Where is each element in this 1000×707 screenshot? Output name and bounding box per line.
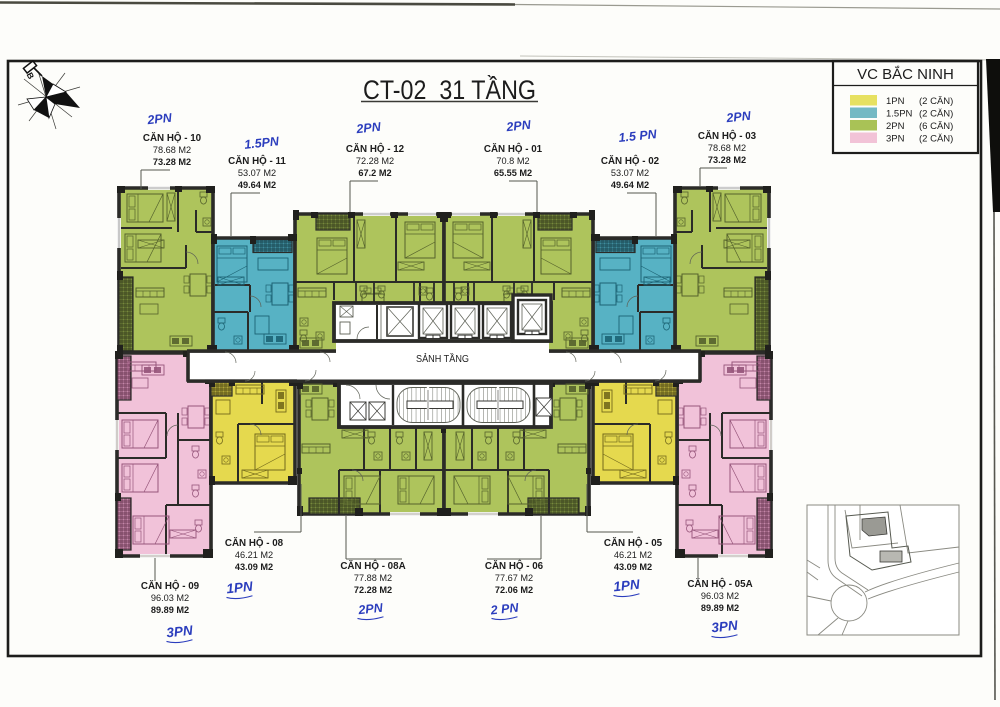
svg-text:CĂN HỘ - 05A: CĂN HỘ - 05A — [687, 578, 752, 590]
svg-text:96.03 M2: 96.03 M2 — [151, 593, 189, 603]
svg-text:77.67 M2: 77.67 M2 — [495, 573, 533, 583]
svg-text:70.8 M2: 70.8 M2 — [496, 156, 529, 166]
svg-text:2PN: 2PN — [146, 111, 174, 128]
svg-text:(2 CĂN): (2 CĂN) — [919, 134, 953, 145]
svg-text:2PN: 2PN — [357, 601, 385, 618]
svg-text:CĂN HỘ - 03: CĂN HỘ - 03 — [698, 130, 757, 142]
svg-text:43.09 M2: 43.09 M2 — [235, 562, 273, 572]
svg-text:78.68 M2: 78.68 M2 — [153, 145, 191, 155]
svg-text:3PN: 3PN — [711, 618, 739, 636]
svg-text:72.28 M2: 72.28 M2 — [356, 156, 394, 166]
svg-text:89.89 M2: 89.89 M2 — [151, 605, 189, 615]
svg-text:77.88 M2: 77.88 M2 — [354, 573, 392, 583]
svg-text:SẢNH TẦNG: SẢNH TẦNG — [416, 352, 469, 365]
svg-text:67.2 M2: 67.2 M2 — [358, 168, 391, 178]
svg-text:(6 CĂN): (6 CĂN) — [919, 121, 953, 132]
svg-text:1.5PN: 1.5PN — [244, 134, 281, 152]
svg-text:2PN: 2PN — [725, 109, 753, 126]
svg-text:49.64 M2: 49.64 M2 — [238, 180, 276, 190]
svg-text:72.28 M2: 72.28 M2 — [354, 585, 392, 595]
svg-text:72.06 M2: 72.06 M2 — [495, 585, 533, 595]
svg-text:VC BẮC NINH: VC BẮC NINH — [857, 65, 954, 83]
svg-text:73.28 M2: 73.28 M2 — [153, 157, 191, 167]
svg-text:2PN: 2PN — [355, 120, 383, 137]
svg-text:73.28 M2: 73.28 M2 — [708, 155, 746, 165]
svg-text:43.09 M2: 43.09 M2 — [614, 562, 652, 572]
svg-text:2 PN: 2 PN — [489, 601, 520, 618]
svg-text:2PN: 2PN — [886, 121, 905, 132]
svg-text:53.07 M2: 53.07 M2 — [238, 168, 276, 178]
svg-text:1PN: 1PN — [226, 579, 254, 597]
svg-text:53.07 M2: 53.07 M2 — [611, 168, 649, 178]
svg-text:CĂN HỘ - 01: CĂN HỘ - 01 — [484, 143, 543, 155]
svg-text:CT-02 31 TẦNG: CT-02 31 TẦNG — [363, 74, 536, 105]
svg-text:46.21 M2: 46.21 M2 — [235, 550, 273, 560]
svg-text:1PN: 1PN — [613, 577, 641, 595]
svg-text:CĂN HỘ - 06: CĂN HỘ - 06 — [485, 560, 544, 572]
svg-text:89.89 M2: 89.89 M2 — [701, 603, 739, 613]
svg-text:2PN: 2PN — [505, 118, 533, 135]
svg-text:46.21 M2: 46.21 M2 — [614, 550, 652, 560]
svg-text:78.68 M2: 78.68 M2 — [708, 143, 746, 153]
svg-text:96.03 M2: 96.03 M2 — [701, 591, 739, 601]
svg-text:1.5PN: 1.5PN — [886, 109, 913, 120]
svg-text:CĂN HỘ - 02: CĂN HỘ - 02 — [601, 155, 660, 167]
svg-text:(2 CĂN): (2 CĂN) — [919, 96, 953, 107]
svg-text:49.64 M2: 49.64 M2 — [611, 180, 649, 190]
svg-text:3PN: 3PN — [886, 134, 905, 145]
svg-text:CĂN HỘ - 11: CĂN HỘ - 11 — [228, 155, 286, 167]
svg-text:1PN: 1PN — [886, 96, 905, 107]
svg-text:CĂN HỘ - 08A: CĂN HỘ - 08A — [340, 560, 405, 572]
svg-text:(2 CĂN): (2 CĂN) — [919, 109, 953, 120]
svg-text:65.55 M2: 65.55 M2 — [494, 168, 532, 178]
svg-text:CĂN HỘ - 10: CĂN HỘ - 10 — [143, 132, 202, 144]
svg-text:CĂN HỘ - 09: CĂN HỘ - 09 — [141, 580, 200, 592]
svg-text:CĂN HỘ - 08: CĂN HỘ - 08 — [225, 537, 284, 549]
svg-text:CĂN HỘ - 05: CĂN HỘ - 05 — [604, 537, 663, 549]
svg-text:1.5 PN: 1.5 PN — [618, 127, 658, 145]
svg-text:CĂN HỘ - 12: CĂN HỘ - 12 — [346, 143, 405, 155]
svg-text:3PN: 3PN — [166, 623, 194, 641]
